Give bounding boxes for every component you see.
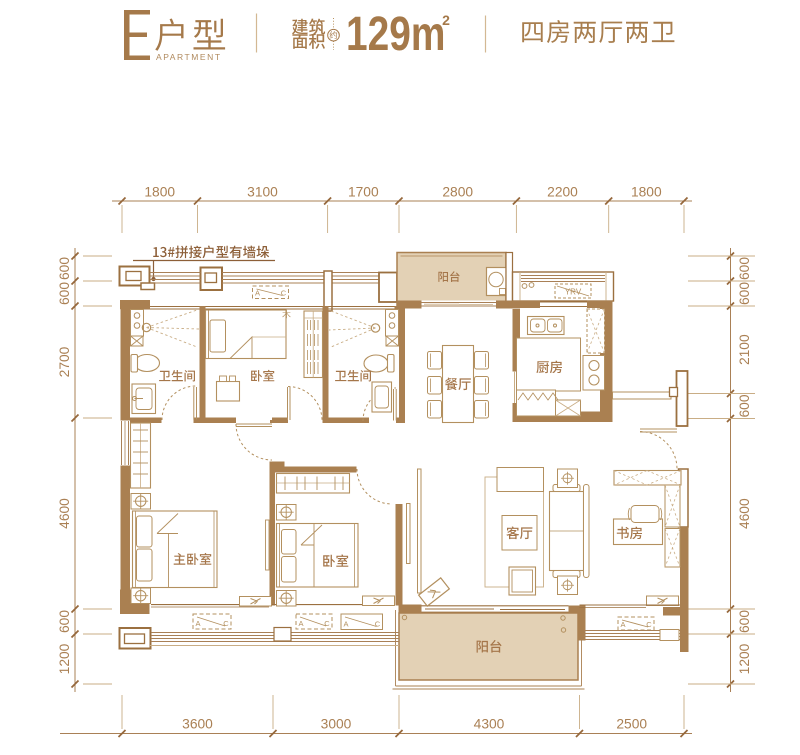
svg-text:C: C (223, 619, 229, 628)
svg-text:1800: 1800 (631, 185, 662, 200)
svg-text:1800: 1800 (144, 185, 175, 200)
svg-text:600: 600 (737, 610, 752, 633)
svg-text:1200: 1200 (737, 643, 752, 674)
svg-text:2: 2 (442, 12, 450, 28)
svg-text:2200: 2200 (547, 185, 578, 200)
svg-text:4300: 4300 (474, 717, 505, 732)
svg-text:600: 600 (57, 610, 72, 633)
svg-text:3600: 3600 (182, 717, 213, 732)
svg-text:2800: 2800 (442, 185, 473, 200)
svg-text:1700: 1700 (348, 185, 379, 200)
svg-text:C: C (646, 620, 652, 629)
svg-text:C: C (281, 289, 287, 298)
svg-text:600: 600 (737, 257, 752, 280)
svg-text:4600: 4600 (737, 498, 752, 529)
svg-text:A: A (343, 620, 348, 629)
svg-text:A: A (255, 289, 260, 298)
svg-text:600: 600 (57, 282, 72, 305)
svg-text:600: 600 (737, 282, 752, 305)
svg-text:129m: 129m (346, 7, 445, 61)
svg-text:3100: 3100 (247, 185, 278, 200)
svg-text:600: 600 (57, 257, 72, 280)
svg-text:C: C (324, 619, 330, 628)
svg-text:A: A (298, 619, 303, 628)
svg-text:C: C (375, 620, 381, 629)
svg-text:1200: 1200 (57, 643, 72, 674)
svg-text:3000: 3000 (321, 717, 352, 732)
svg-text:A: A (195, 619, 200, 628)
svg-text:APARTMENT: APARTMENT (156, 52, 222, 62)
svg-text:2700: 2700 (57, 346, 72, 377)
svg-text:YRV: YRV (565, 288, 582, 297)
svg-text:2100: 2100 (737, 334, 752, 365)
svg-text:600: 600 (737, 394, 752, 417)
svg-text:2500: 2500 (616, 717, 647, 732)
svg-text:4600: 4600 (57, 498, 72, 529)
svg-text:A: A (620, 620, 625, 629)
